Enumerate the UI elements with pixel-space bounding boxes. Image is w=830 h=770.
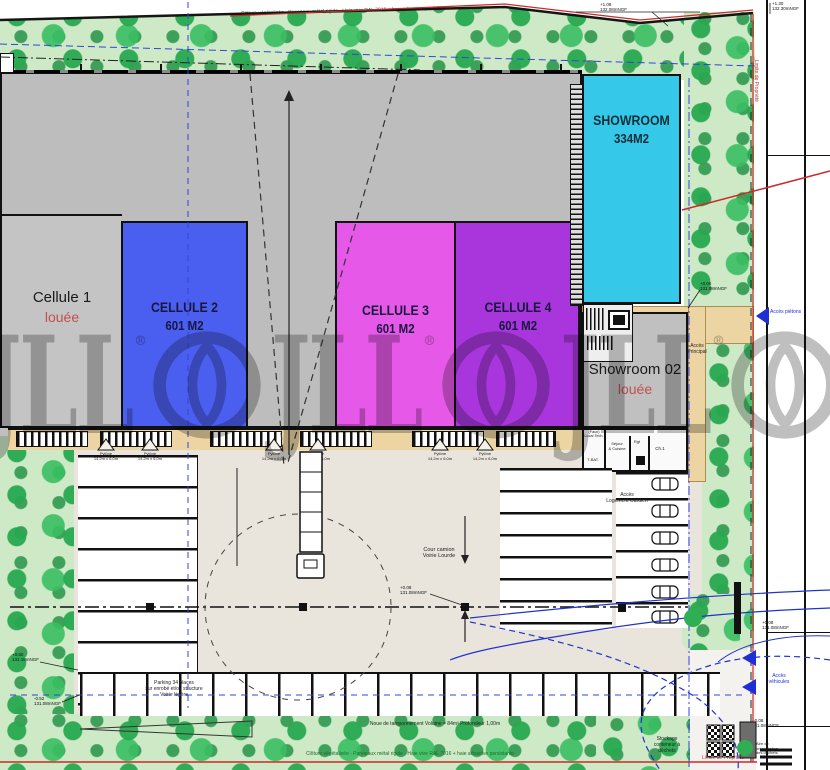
dock-doors bbox=[16, 431, 88, 447]
dock-doors bbox=[210, 431, 282, 447]
elevation-callout: +0.08131.08mNGF bbox=[400, 585, 427, 596]
fence-note-bottom: Clôture végétalisée - Panneaux métal rig… bbox=[240, 752, 580, 758]
parking-note: Parking 34 placessur enrobé et/ou struct… bbox=[118, 681, 230, 698]
cour-camion-label: Cour camionVoirie Lourde bbox=[403, 547, 475, 560]
road-line bbox=[766, 0, 768, 770]
acces-pietons-label: Accès piétons bbox=[770, 310, 818, 316]
parking-column-left bbox=[78, 455, 198, 707]
road-tick bbox=[766, 632, 830, 633]
cellule3-label: CELLULE 3601 M2 bbox=[342, 300, 448, 339]
room-label-ch1: Ch.1 bbox=[651, 446, 669, 451]
bathroom-block bbox=[636, 456, 645, 465]
pylon-label: Pylône14,2m x 6,0m bbox=[467, 452, 503, 461]
dock-doors bbox=[496, 431, 556, 447]
acces-vehicules-label: Accèsvéhicules bbox=[758, 674, 800, 686]
dock-doors bbox=[100, 431, 172, 447]
acces-principal-label: AccèsPrincipal bbox=[676, 344, 718, 356]
dock-doors bbox=[300, 431, 372, 447]
room-label-sejour: Séjour& Cuisine bbox=[604, 442, 630, 451]
elevation-callout: -0.52131.08mNGF bbox=[34, 696, 61, 707]
elevation-callout: +0.08131.08mNGF bbox=[700, 281, 727, 292]
showroom-area bbox=[582, 74, 681, 304]
noue-note: Noue de tamponnement Volume = 84m³ Profo… bbox=[300, 722, 570, 728]
road-line bbox=[804, 0, 806, 770]
pylon-label: Pylône14,2m x 6,0m bbox=[300, 452, 336, 461]
site-plan: CELLULE 2601 M2 CELLULE 3601 M2 CELLULE … bbox=[0, 0, 830, 770]
elevation-callout: +1.08132.08mNGF bbox=[600, 2, 627, 13]
elevation-callout: +0.50131.18mNGF bbox=[12, 652, 39, 663]
elevation-callout: +0.08131.08mNGF bbox=[752, 718, 779, 729]
elevation-callout: +1.30132.30mNGF bbox=[772, 1, 799, 12]
walkway-right bbox=[688, 306, 706, 482]
landscape-strip-right bbox=[684, 12, 754, 314]
acces-gardien-label: AccèsLogement Gardien bbox=[596, 493, 658, 505]
cellule4-label: CELLULE 4601 M2 bbox=[463, 297, 572, 336]
dock-doors bbox=[412, 431, 484, 447]
room-label-tbat: T-BAT. bbox=[582, 458, 604, 463]
room-label-local-tech: (Faux)Local Tech. bbox=[583, 430, 605, 439]
room-label-rgt: Rgt bbox=[630, 440, 644, 445]
elevator-core bbox=[613, 315, 625, 325]
cellule1-label: Cellule 1louée bbox=[4, 288, 120, 326]
road-tick bbox=[766, 155, 830, 156]
dechets-label: Aire deprésentationdes déchets bbox=[756, 742, 796, 756]
pylon-label: Pylône14,2m x 6,0m bbox=[422, 452, 458, 461]
stair-hatch bbox=[587, 336, 613, 350]
stockage-label: Stockageconteneur àdéchets bbox=[646, 737, 688, 754]
showroom02-label: Showroom 02louée bbox=[582, 360, 688, 398]
pylon-label: Pylône14,2m x 6,0m bbox=[256, 452, 292, 461]
showroom-label: SHOWROOM334M2 bbox=[588, 110, 675, 149]
pylon-label: Pylône14,2m x 6,0m bbox=[132, 452, 168, 461]
building-tick-row bbox=[0, 64, 582, 71]
pylon-label: Pylône14,2m x 6,0m bbox=[88, 452, 124, 461]
limite-propriete-label: Limite de Propriété bbox=[688, 756, 758, 762]
limite-propriete-label-vertical: Limite de Propriété bbox=[752, 60, 758, 160]
room-wall bbox=[648, 436, 650, 472]
landscape-island bbox=[682, 594, 740, 650]
gate-door bbox=[0, 53, 14, 73]
elevation-callout: +0.08131.08mNGF bbox=[762, 620, 789, 631]
cellule2-label: CELLULE 2601 M2 bbox=[129, 297, 241, 336]
stair-hatch bbox=[586, 308, 606, 330]
